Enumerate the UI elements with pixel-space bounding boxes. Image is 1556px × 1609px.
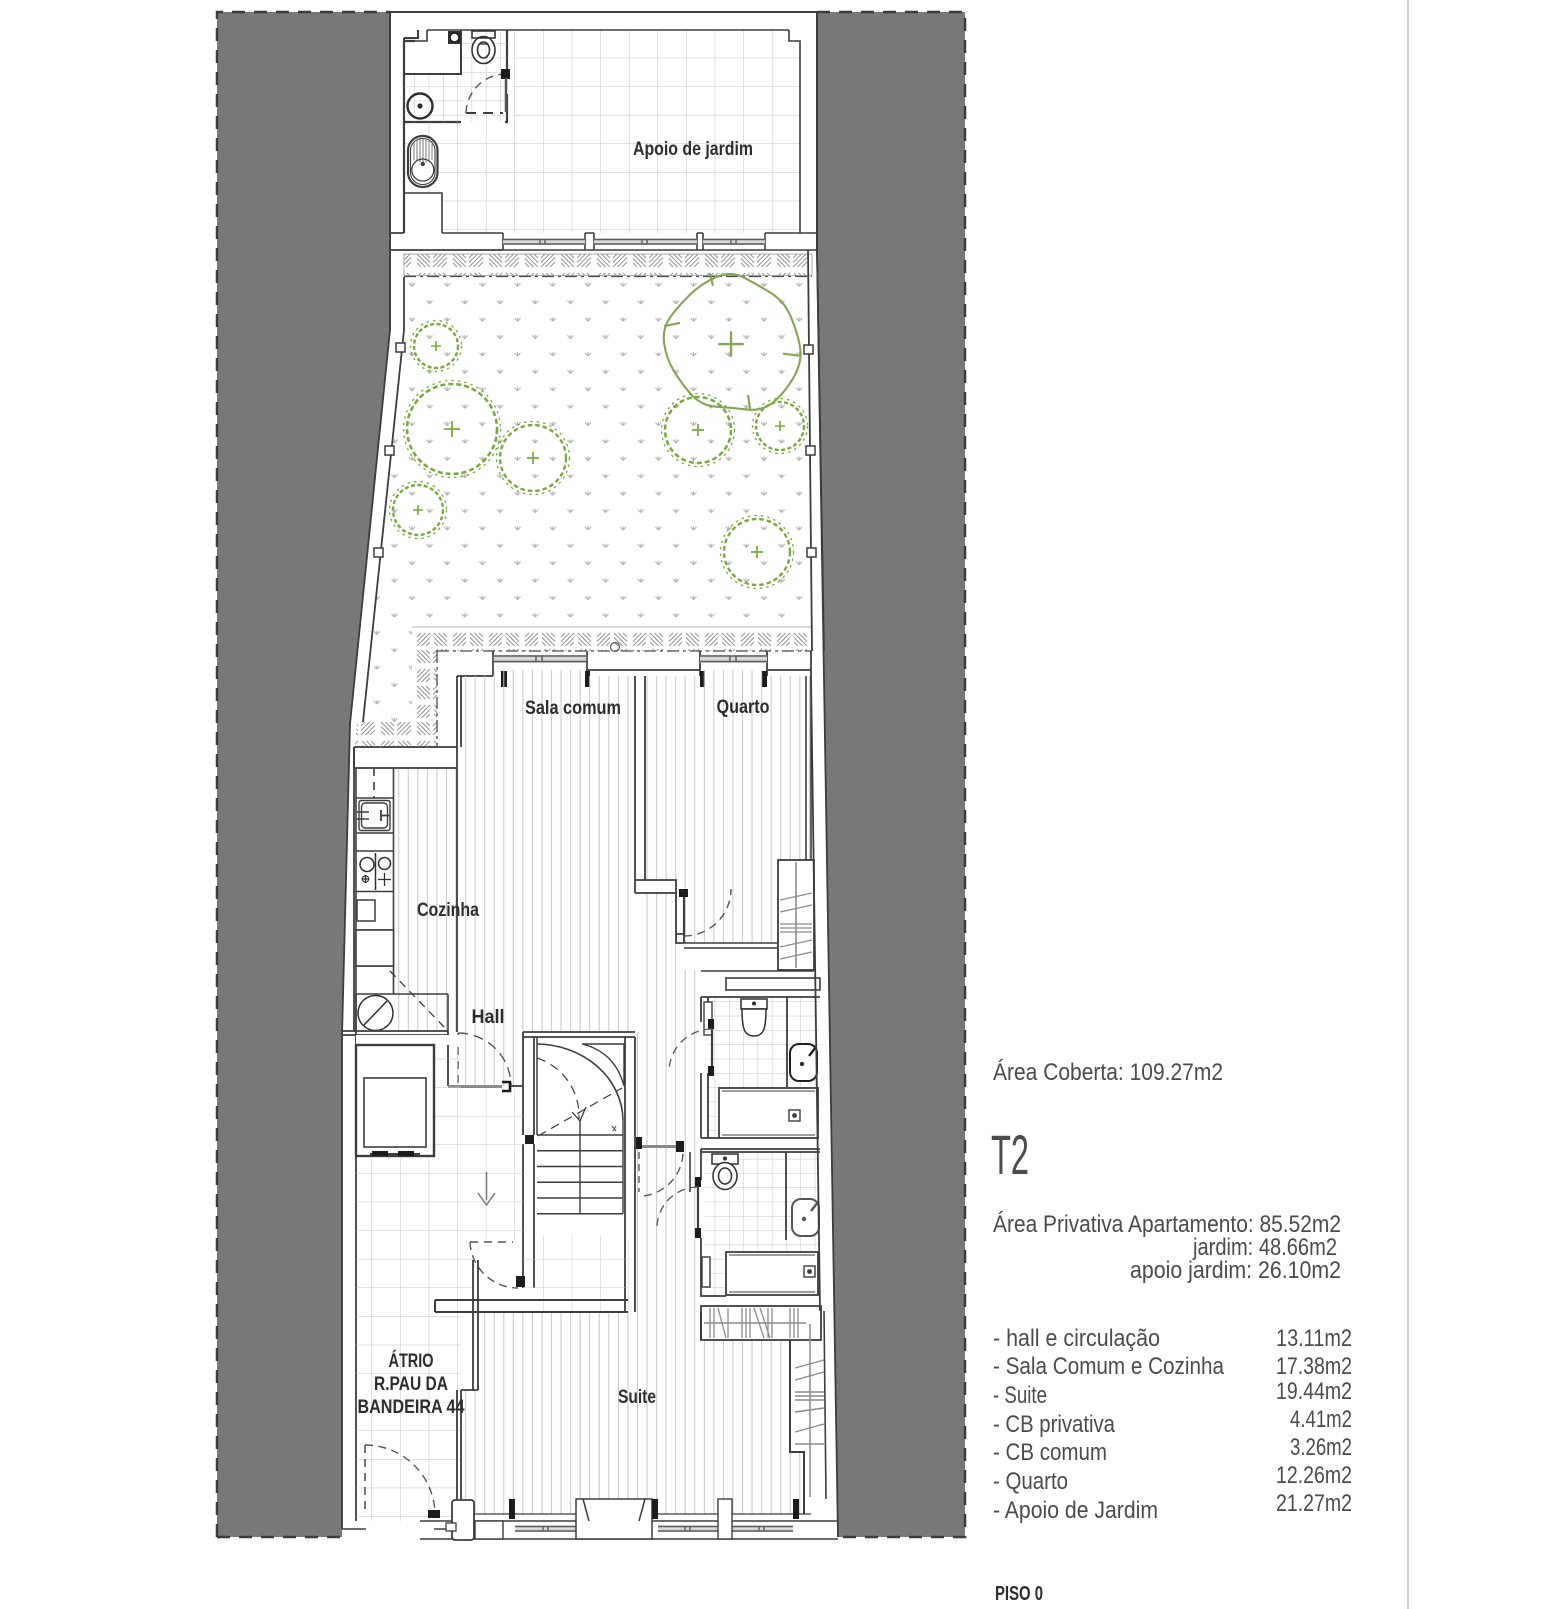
svg-text:Área Coberta: 109.27m2: Área Coberta: 109.27m2 (993, 1059, 1223, 1086)
svg-text:apoio jardim: 26.10m2: apoio jardim: 26.10m2 (1130, 1257, 1341, 1284)
svg-text:Suite: Suite (618, 1387, 656, 1408)
svg-text:Apoio de jardim: Apoio de jardim (633, 139, 753, 160)
svg-text:- CB comum: - CB comum (993, 1439, 1107, 1466)
svg-text:- Suite: - Suite (993, 1382, 1047, 1409)
svg-text:- Quarto: - Quarto (993, 1468, 1068, 1495)
svg-text:R.PAU DA: R.PAU DA (374, 1374, 448, 1395)
svg-text:17.38m2: 17.38m2 (1276, 1353, 1352, 1380)
svg-text:4.41m2: 4.41m2 (1290, 1406, 1352, 1433)
svg-text:ÁTRIO: ÁTRIO (389, 1350, 434, 1372)
svg-text:BANDEIRA 44: BANDEIRA 44 (358, 1397, 465, 1418)
svg-text:21.27m2: 21.27m2 (1276, 1490, 1352, 1517)
svg-text:Hall: Hall (472, 1007, 505, 1028)
svg-text:13.11m2: 13.11m2 (1276, 1325, 1352, 1352)
svg-text:- Apoio de Jardim: - Apoio de Jardim (993, 1497, 1158, 1524)
svg-text:- hall e circulação: - hall e circulação (993, 1325, 1160, 1352)
svg-text:Cozinha: Cozinha (417, 900, 479, 921)
svg-text:19.44m2: 19.44m2 (1276, 1378, 1352, 1405)
svg-text:12.26m2: 12.26m2 (1276, 1462, 1352, 1489)
svg-text:- CB privativa: - CB privativa (993, 1411, 1116, 1438)
svg-text:T2: T2 (991, 1123, 1029, 1186)
svg-text:PISO 0: PISO 0 (995, 1583, 1043, 1605)
svg-text:3.26m2: 3.26m2 (1290, 1434, 1352, 1461)
svg-text:Sala comum: Sala comum (525, 698, 621, 719)
svg-text:Quarto: Quarto (717, 697, 770, 718)
svg-text:- Sala Comum e Cozinha: - Sala Comum e Cozinha (993, 1353, 1225, 1380)
